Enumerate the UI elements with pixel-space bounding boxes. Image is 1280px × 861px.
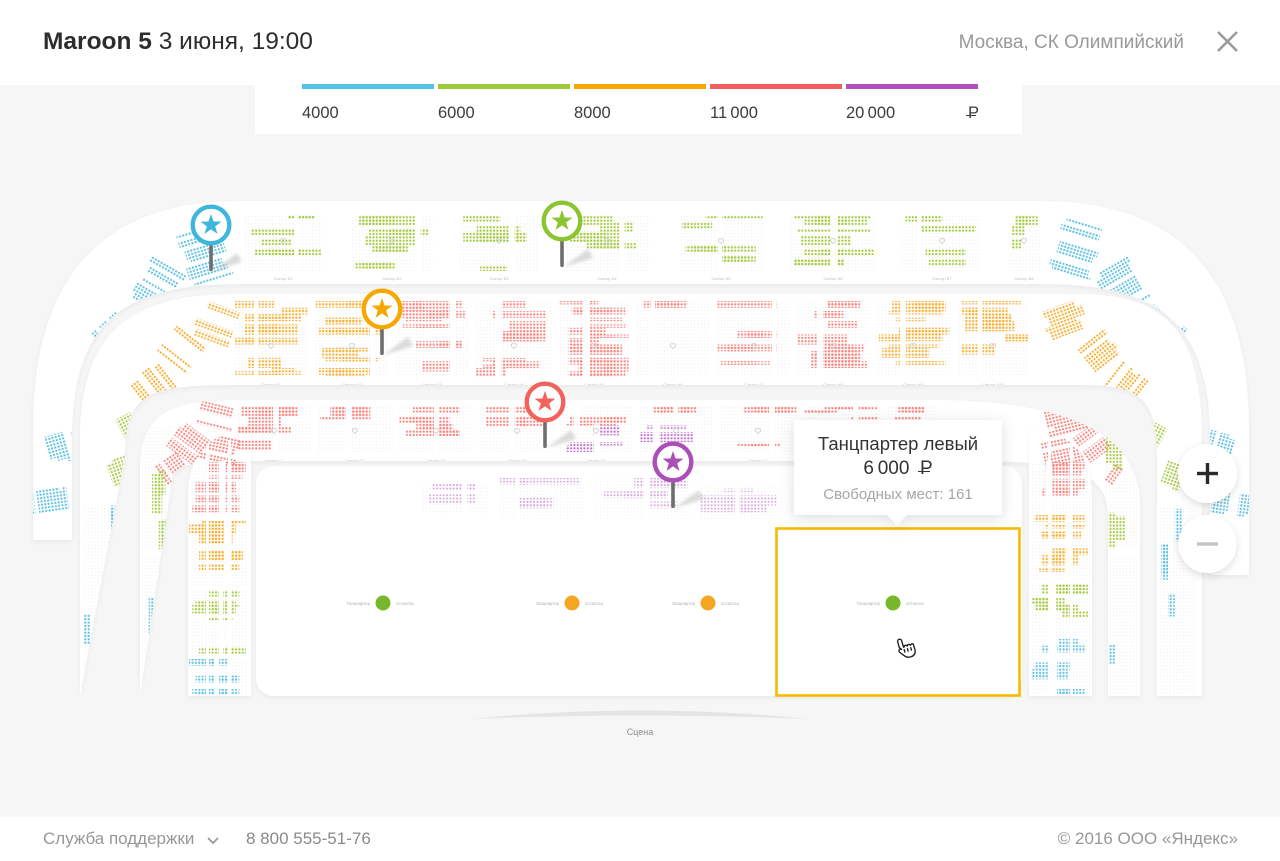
svg-text:осталось: осталось bbox=[585, 601, 604, 606]
svg-text:Сектор А1: Сектор А1 bbox=[261, 382, 281, 387]
svg-text:Танцпартер: Танцпартер bbox=[672, 601, 696, 606]
svg-text:Сектор С2: Сектор С2 bbox=[345, 458, 365, 463]
svg-text:Сектор А10: Сектор А10 bbox=[982, 382, 1004, 387]
svg-text:Сектор А9: Сектор А9 bbox=[903, 382, 923, 387]
svg-text:Сектор С1: Сектор С1 bbox=[264, 458, 284, 463]
svg-text:Сектор А6: Сектор А6 bbox=[663, 382, 683, 387]
svg-text:Танцпартер: Танцпартер bbox=[857, 601, 881, 606]
svg-text:Сектор Б1: Сектор Б1 bbox=[273, 276, 293, 281]
svg-text:Сектор С7: Сектор С7 bbox=[748, 458, 768, 463]
svg-text:осталось: осталось bbox=[906, 601, 925, 606]
svg-text:Сектор А2: Сектор А2 bbox=[342, 382, 362, 387]
svg-text:Сектор Б6: Сектор Б6 bbox=[823, 276, 843, 281]
svg-text:Сектор Б5: Сектор Б5 bbox=[711, 276, 731, 281]
svg-text:Сектор А7: Сектор А7 bbox=[744, 382, 764, 387]
svg-text:Сектор Б4: Сектор Б4 bbox=[597, 276, 617, 281]
svg-text:Танцпартер: Танцпартер bbox=[536, 601, 560, 606]
svg-text:Сектор А8: Сектор А8 bbox=[823, 382, 843, 387]
svg-text:Сектор С3: Сектор С3 bbox=[426, 458, 446, 463]
svg-text:Сектор Б3: Сектор Б3 bbox=[489, 276, 509, 281]
svg-text:Сектор Б7: Сектор Б7 bbox=[932, 276, 952, 281]
svg-text:Сектор А4: Сектор А4 bbox=[504, 382, 524, 387]
svg-text:Сектор А3: Сектор А3 bbox=[422, 382, 442, 387]
svg-text:Сектор С5: Сектор С5 bbox=[586, 458, 606, 463]
svg-text:Танцпартер: Танцпартер bbox=[347, 601, 371, 606]
svg-text:Сектор С4: Сектор С4 bbox=[507, 458, 527, 463]
svg-text:осталось: осталось bbox=[396, 601, 415, 606]
svg-text:Сектор Б2: Сектор Б2 bbox=[382, 276, 402, 281]
svg-text:Сектор Б8: Сектор Б8 bbox=[1014, 276, 1034, 281]
svg-text:Сектор А5: Сектор А5 bbox=[584, 382, 604, 387]
svg-text:осталось: осталось bbox=[721, 601, 740, 606]
svg-text:Сцена: Сцена bbox=[627, 727, 654, 737]
